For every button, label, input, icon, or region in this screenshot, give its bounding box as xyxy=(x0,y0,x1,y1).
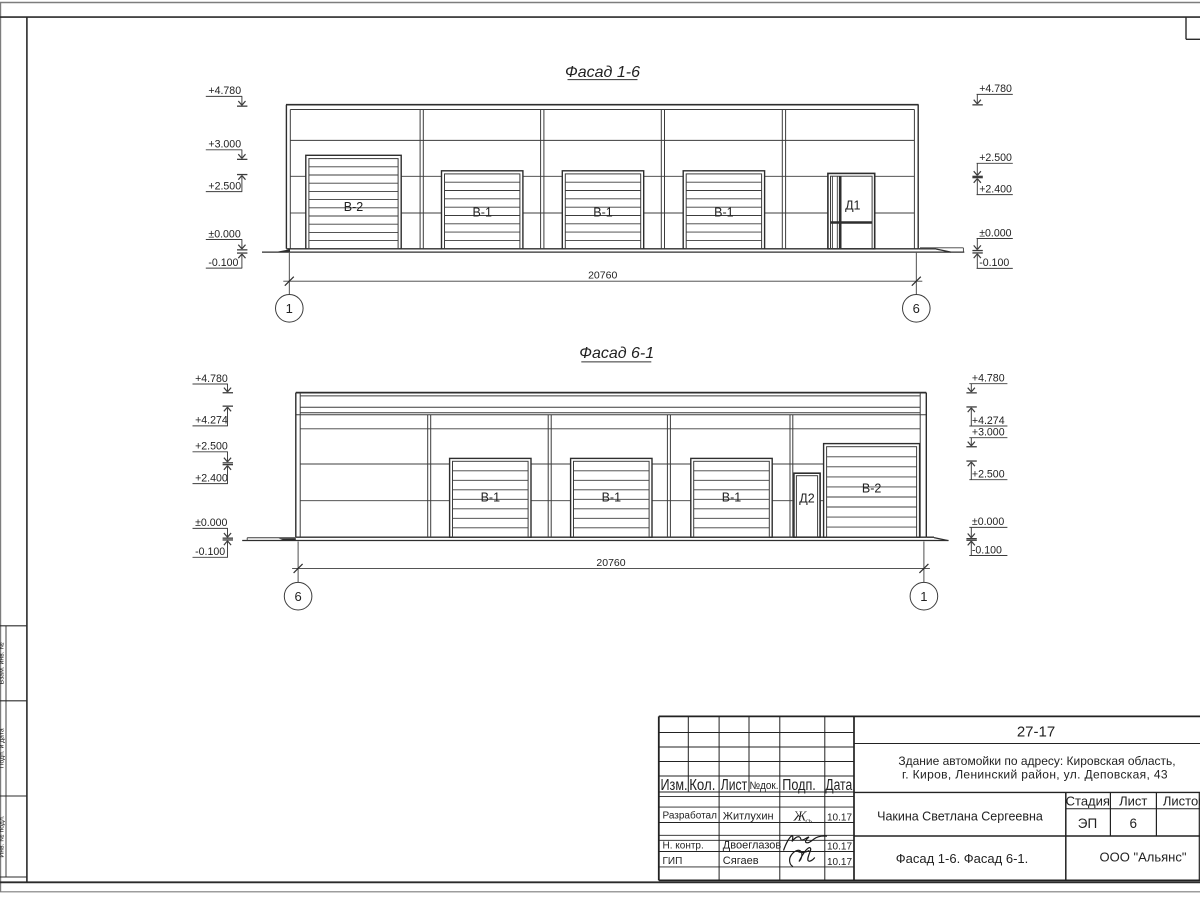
svg-text:+3.000: +3.000 xyxy=(208,139,241,151)
svg-text:20760: 20760 xyxy=(596,557,625,569)
svg-text:Изм.: Изм. xyxy=(661,777,688,794)
svg-text:±0.000: ±0.000 xyxy=(195,517,227,529)
svg-text:Здание автомойки по адресу: Ки: Здание автомойки по адресу: Кировская об… xyxy=(898,754,1175,768)
svg-text:10.17: 10.17 xyxy=(827,857,852,868)
svg-text:ЭП: ЭП xyxy=(1078,816,1097,831)
svg-text:Разработал: Разработал xyxy=(663,810,718,822)
svg-text:+4.780: +4.780 xyxy=(979,83,1012,95)
svg-text:±0.000: ±0.000 xyxy=(972,516,1004,528)
svg-text:±0.000: ±0.000 xyxy=(208,228,240,240)
svg-text:20760: 20760 xyxy=(588,270,617,282)
svg-text:Подп.: Подп. xyxy=(782,777,816,794)
svg-text:Житлухин: Житлухин xyxy=(723,810,774,822)
svg-text:+2.500: +2.500 xyxy=(208,180,241,192)
svg-text:№док.: №док. xyxy=(750,780,779,792)
svg-text:+2.500: +2.500 xyxy=(972,469,1005,481)
svg-text:Фасад 1-6: Фасад 1-6 xyxy=(565,64,640,81)
svg-text:-0.100: -0.100 xyxy=(195,546,225,558)
svg-text:ООО "Альянс": ООО "Альянс" xyxy=(1100,849,1187,864)
svg-text:+4.780: +4.780 xyxy=(972,373,1005,385)
svg-text:1: 1 xyxy=(286,301,293,316)
svg-text:6: 6 xyxy=(294,589,301,604)
svg-text:Подп. и дата: Подп. и дата xyxy=(0,728,5,768)
svg-text:Сягаев: Сягаев xyxy=(723,855,759,867)
svg-text:-0.100: -0.100 xyxy=(979,257,1009,269)
svg-text:+2.500: +2.500 xyxy=(195,441,228,453)
svg-text:г. Киров, Ленинский район, ул.: г. Киров, Ленинский район, ул. Деповская… xyxy=(902,768,1168,782)
svg-text:В-1: В-1 xyxy=(602,491,622,505)
svg-text:10.17: 10.17 xyxy=(827,812,852,823)
svg-text:Стадия: Стадия xyxy=(1066,793,1110,808)
svg-text:Кол.: Кол. xyxy=(689,777,715,794)
svg-text:Д1: Д1 xyxy=(845,199,860,213)
svg-text:+4.274: +4.274 xyxy=(972,415,1005,427)
svg-text:+4.780: +4.780 xyxy=(195,373,228,385)
svg-text:+2.400: +2.400 xyxy=(979,183,1012,195)
svg-text:сь: сь xyxy=(806,817,812,825)
svg-text:Д2: Д2 xyxy=(799,492,814,506)
svg-text:ГИП: ГИП xyxy=(663,856,683,867)
svg-text:Фасад 6-1: Фасад 6-1 xyxy=(579,345,654,362)
svg-text:Инв. № подл.: Инв. № подл. xyxy=(0,815,5,857)
svg-text:+3.000: +3.000 xyxy=(972,427,1005,439)
svg-text:+4.780: +4.780 xyxy=(208,85,241,97)
svg-text:Чакина Светлана Сергеевна: Чакина Светлана Сергеевна xyxy=(877,809,1043,823)
svg-text:Фасад 1-6. Фасад 6-1.: Фасад 1-6. Фасад 6-1. xyxy=(896,851,1029,866)
svg-text:Взам. инв. №: Взам. инв. № xyxy=(0,642,5,684)
svg-text:В-2: В-2 xyxy=(344,200,364,214)
svg-text:+2.500: +2.500 xyxy=(979,152,1012,164)
svg-text:Н. контр.: Н. контр. xyxy=(663,840,704,851)
svg-text:+2.400: +2.400 xyxy=(195,472,228,484)
svg-text:27-17: 27-17 xyxy=(1017,724,1055,741)
svg-text:Листов: Листов xyxy=(1163,793,1200,808)
svg-text:В-2: В-2 xyxy=(862,482,882,496)
svg-text:6: 6 xyxy=(1129,816,1137,831)
svg-text:6: 6 xyxy=(913,301,920,316)
svg-text:Лист: Лист xyxy=(721,777,747,794)
svg-text:В-1: В-1 xyxy=(593,206,613,220)
svg-text:1: 1 xyxy=(920,589,927,604)
svg-text:Лист: Лист xyxy=(1119,793,1147,808)
svg-text:Дата: Дата xyxy=(825,777,852,794)
svg-text:В-1: В-1 xyxy=(481,491,501,505)
svg-text:+4.274: +4.274 xyxy=(195,415,228,427)
svg-text:10.17: 10.17 xyxy=(827,842,852,853)
svg-text:-0.100: -0.100 xyxy=(208,257,238,269)
svg-text:Двоеглазов: Двоеглазов xyxy=(723,840,782,852)
svg-text:В-1: В-1 xyxy=(722,491,742,505)
svg-text:±0.000: ±0.000 xyxy=(979,227,1011,239)
svg-text:В-1: В-1 xyxy=(714,206,734,220)
svg-text:В-1: В-1 xyxy=(472,206,492,220)
svg-text:-0.100: -0.100 xyxy=(972,544,1002,556)
